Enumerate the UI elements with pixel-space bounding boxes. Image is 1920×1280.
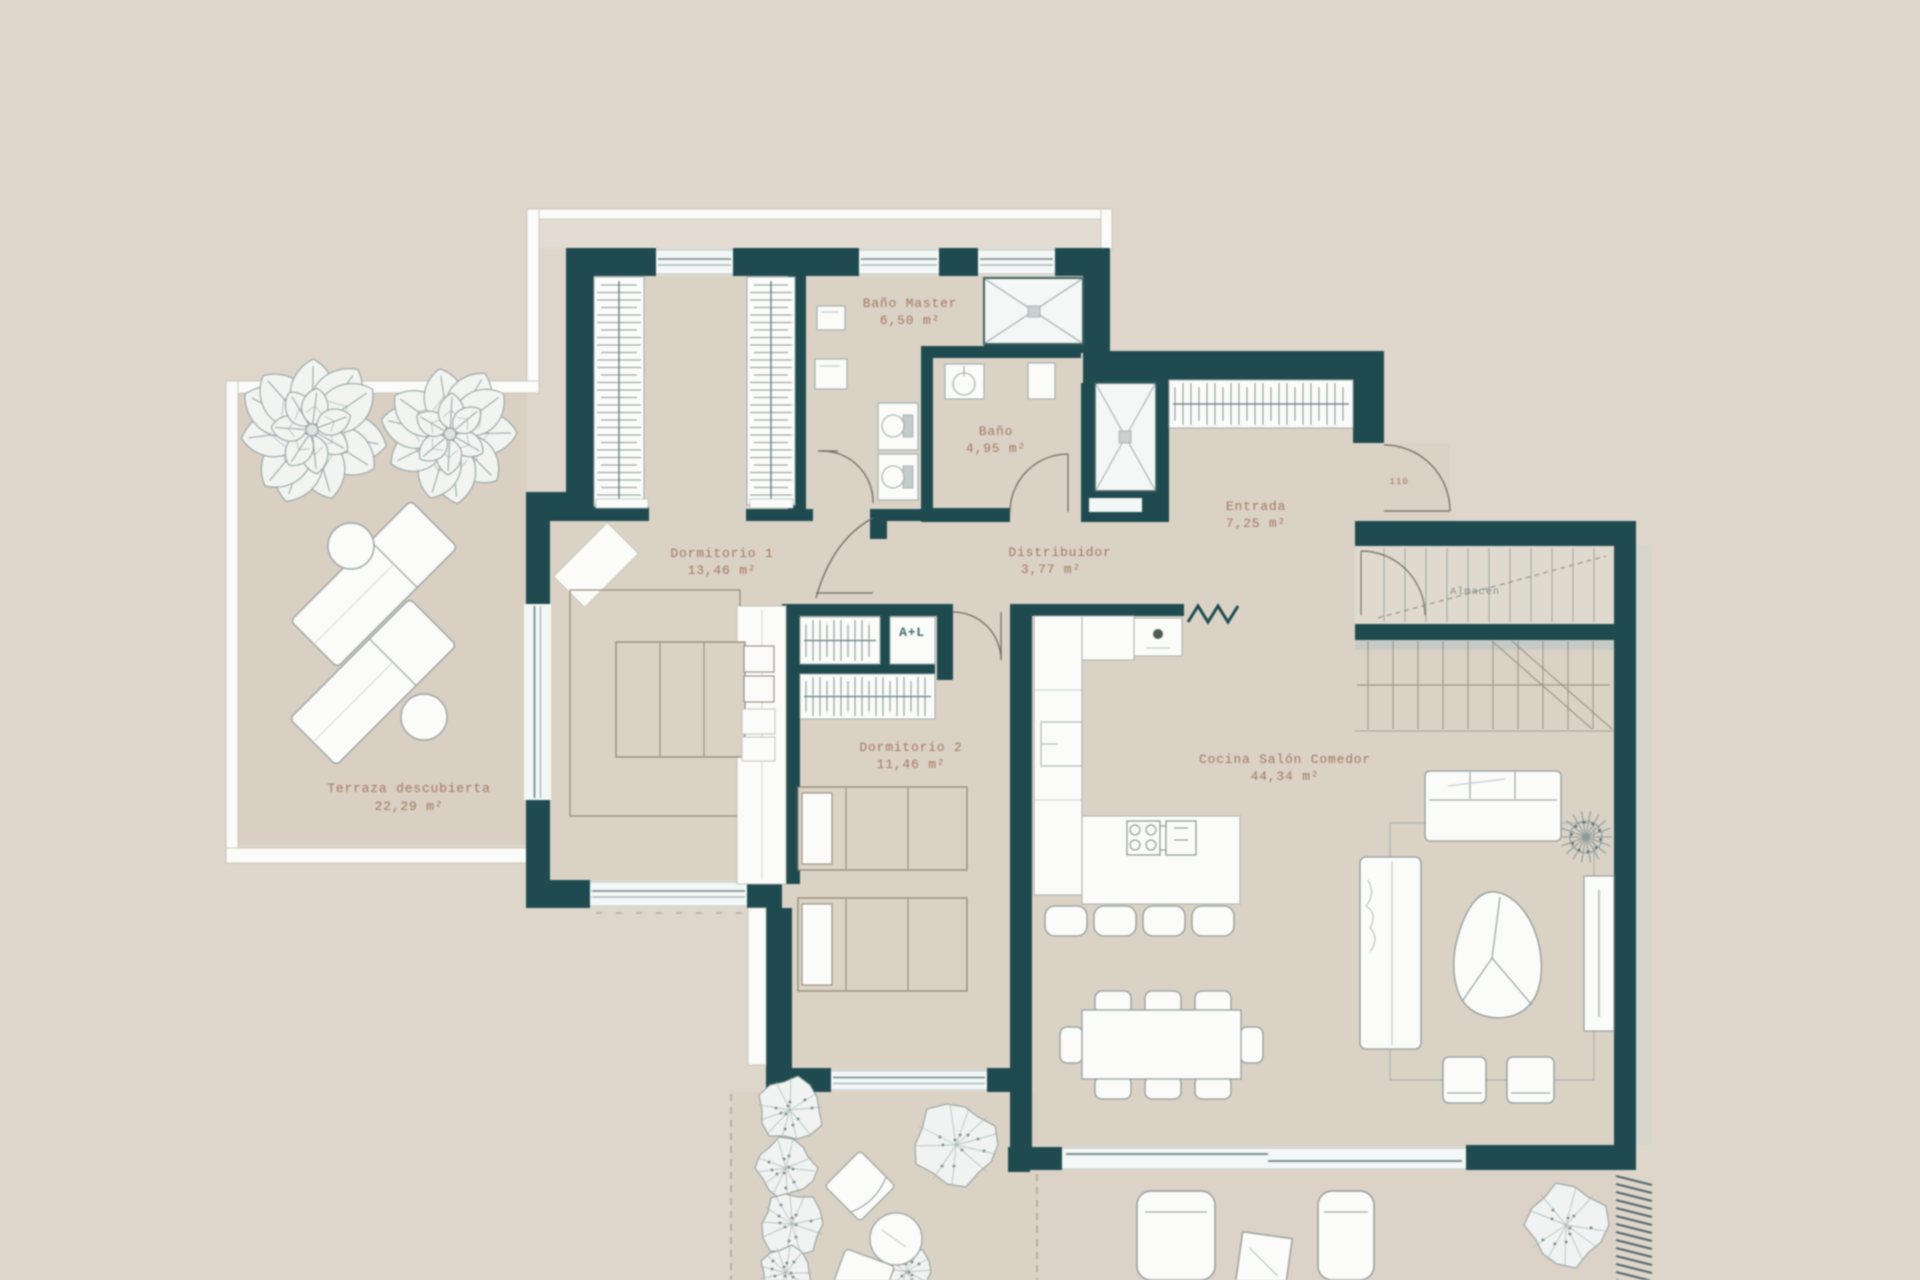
svg-text:Terraza descubierta: Terraza descubierta: [327, 781, 490, 796]
svg-text:Baño: Baño: [979, 424, 1013, 439]
svg-text:Cocina Salón Comedor: Cocina Salón Comedor: [1199, 752, 1371, 767]
svg-text:Baño Master: Baño Master: [863, 296, 958, 311]
svg-text:3,77 m²: 3,77 m²: [1021, 562, 1081, 577]
svg-text:44,34 m²: 44,34 m²: [1251, 769, 1320, 784]
svg-text:11,46 m²: 11,46 m²: [877, 757, 946, 772]
svg-text:A+L: A+L: [899, 625, 925, 640]
svg-text:Entrada: Entrada: [1226, 499, 1286, 514]
svg-text:22,29 m²: 22,29 m²: [375, 799, 444, 814]
svg-text:13,46 m²: 13,46 m²: [688, 563, 757, 578]
svg-text:7,25 m²: 7,25 m²: [1226, 516, 1286, 531]
svg-text:Almacén: Almacén: [1450, 586, 1500, 598]
svg-text:Dormitorio 2: Dormitorio 2: [859, 740, 962, 755]
svg-text:Distribuidor: Distribuidor: [1008, 545, 1111, 560]
svg-text:4,95 m²: 4,95 m²: [966, 441, 1026, 456]
svg-text:110: 110: [1389, 476, 1409, 487]
svg-text:Dormitorio 1: Dormitorio 1: [670, 546, 773, 561]
svg-text:6,50 m²: 6,50 m²: [880, 313, 940, 328]
